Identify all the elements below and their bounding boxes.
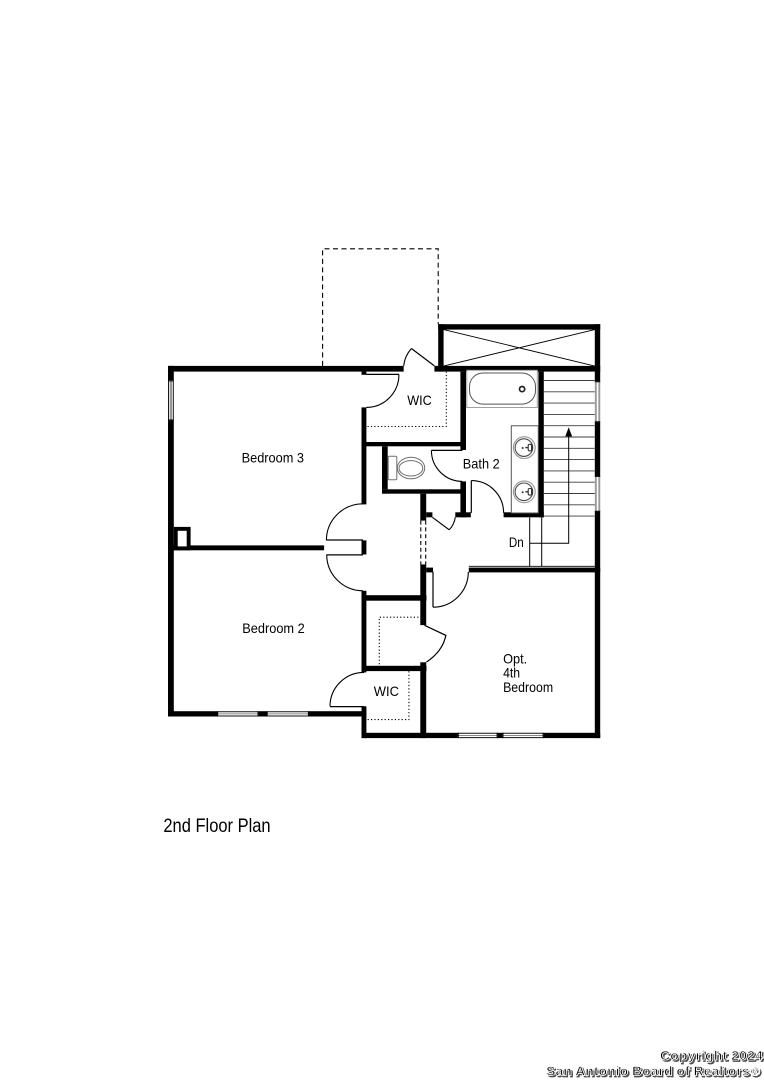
svg-text:Bedroom: Bedroom	[503, 680, 553, 695]
svg-text:Copyright 2024: Copyright 2024	[660, 1048, 764, 1063]
svg-text:Bedroom 3: Bedroom 3	[242, 451, 304, 466]
svg-text:WIC: WIC	[407, 393, 432, 408]
svg-text:Bath 2: Bath 2	[463, 456, 500, 471]
svg-text:Bedroom 2: Bedroom 2	[242, 621, 304, 636]
svg-text:San Antonio Board of Realtors®: San Antonio Board of Realtors®	[546, 1064, 760, 1079]
svg-text:WIC: WIC	[374, 684, 399, 699]
svg-text:4th: 4th	[503, 666, 520, 681]
svg-text:Dn: Dn	[509, 535, 524, 550]
svg-text:2nd Floor Plan: 2nd Floor Plan	[163, 815, 270, 837]
svg-text:Opt.: Opt.	[503, 651, 527, 666]
